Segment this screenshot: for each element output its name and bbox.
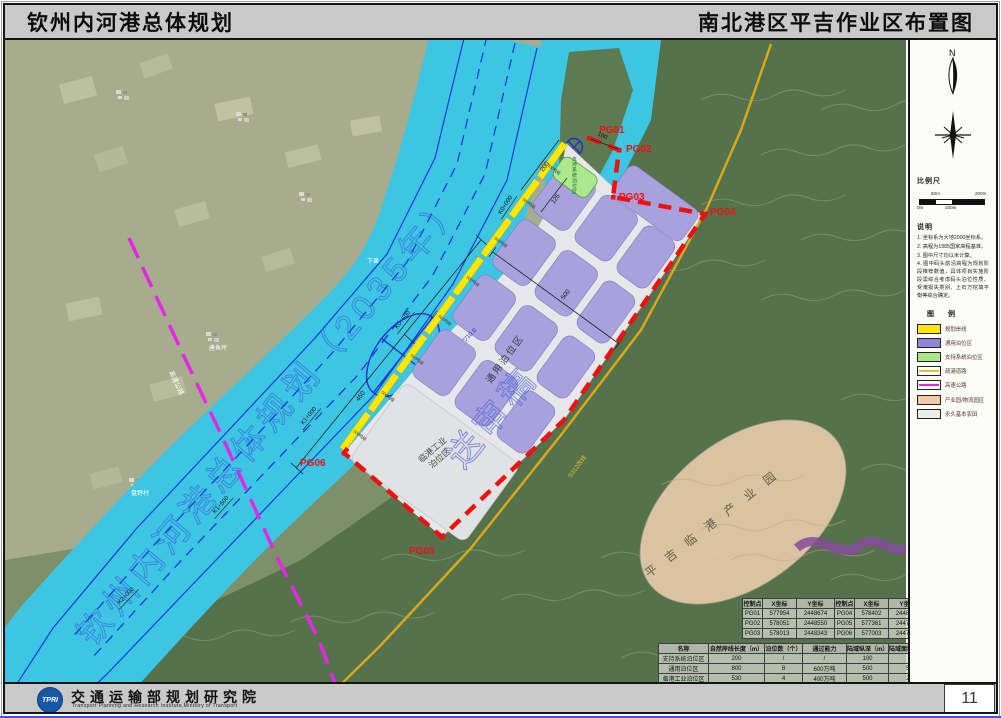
drawing-sheet: K0+000 K0+500 K1+000 K1+500 K2+000 280 <box>0 0 1001 718</box>
sheet-frame <box>3 3 998 714</box>
